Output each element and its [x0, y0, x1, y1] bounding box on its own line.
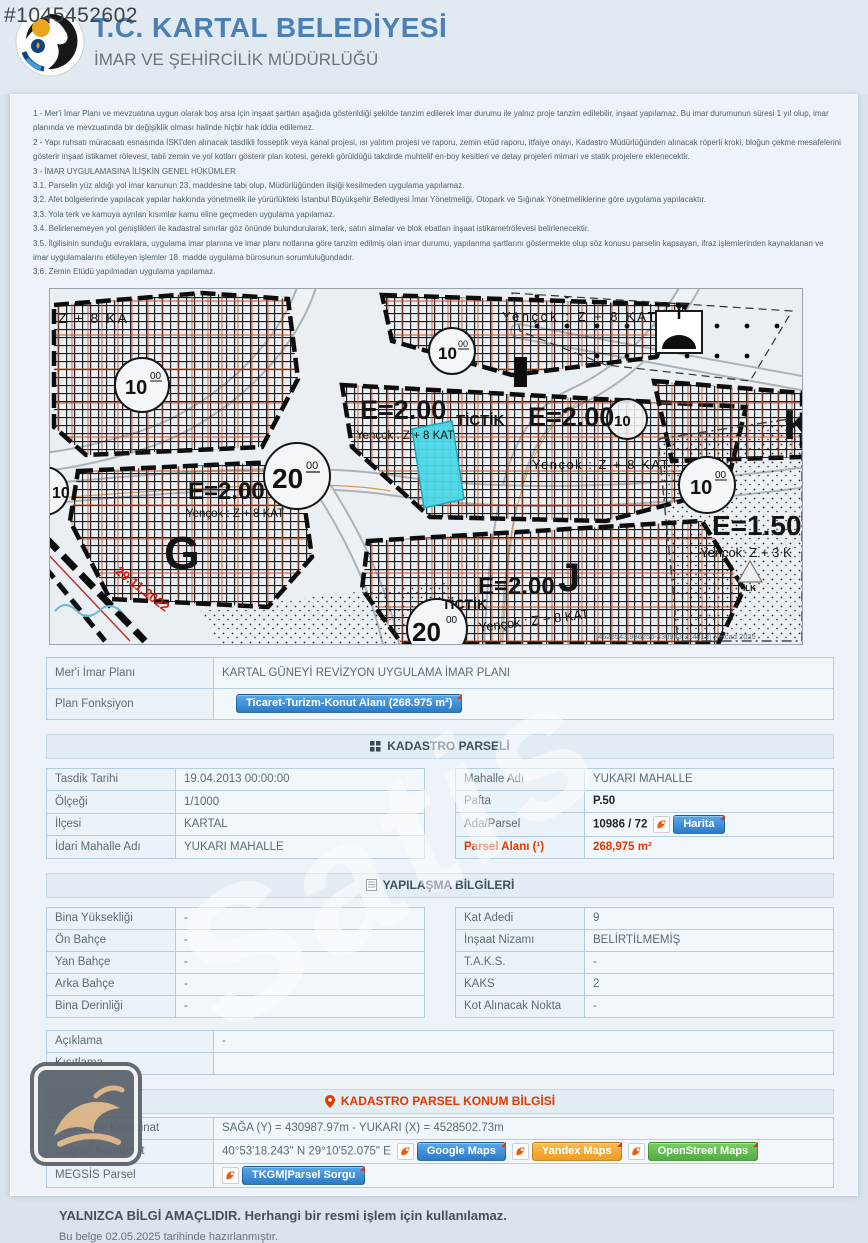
field-label: Mahalle Adı: [456, 768, 585, 790]
table-row: Parsel Alanı (¹)268,975 m²: [456, 836, 834, 858]
table-row: Kat Adedi9: [456, 907, 834, 929]
field-label: İlçesi: [47, 813, 176, 836]
table-row: Plan Fonksiyon Ticaret-Turizm-Konut Alan…: [47, 688, 834, 719]
table-row: Ön Bahçe-: [47, 929, 425, 951]
table-row: Kot Alınacak Nokta-: [456, 995, 834, 1017]
field-label: İdari Mahalle Adı: [47, 836, 176, 859]
google-maps-button[interactable]: Google Maps: [417, 1142, 506, 1161]
field-value: 9: [585, 907, 834, 929]
zone-label: E=2.00: [360, 395, 446, 425]
road-width-value: 20: [272, 463, 303, 494]
field-value: YUKARI MAHALLE: [585, 768, 834, 790]
field-value: -: [176, 929, 425, 951]
generated-date-text: Bu belge 02.05.2025 tarihinde hazırlanmı…: [59, 1231, 857, 1243]
zone-label: Yençok : Z + 8 KAT: [532, 457, 670, 472]
table-row: Coğrafi Koordinat 40°53'18.243" N 29°10'…: [47, 1139, 834, 1163]
field-label: KAKS: [456, 973, 585, 995]
field-value: -: [176, 995, 425, 1017]
field-value: 10986 / 72Harita: [585, 812, 834, 836]
tkgm-icon: [653, 816, 670, 833]
table-row: Yan Bahçe-: [47, 951, 425, 973]
table-row: Bina Yüksekliği-: [47, 907, 425, 929]
legal-line: 3.4. Belirlenemeyen yol genişlikleri ile…: [33, 222, 841, 236]
section-kadastro-parseli: KADASTRO PARSELİ: [46, 734, 834, 759]
legal-line: 3.1. Parselin yüz aldığı yol imar kanunu…: [33, 179, 841, 193]
table-row: Arka Bahçe-: [47, 973, 425, 995]
field-label: Ada/Parsel: [456, 812, 585, 836]
road-width-sup: 00: [150, 371, 162, 382]
table-row: Mahalle AdıYUKARI MAHALLE: [456, 768, 834, 790]
yapilasma-tables: Bina Yüksekliği- Ön Bahçe- Yan Bahçe- Ar…: [46, 907, 857, 1018]
field-value: KARTAL: [176, 813, 425, 836]
konum-table: Kartezyen Koordinat SAĞA (Y) = 430987.97…: [46, 1117, 834, 1188]
legal-notes: 1 - Mer'i İmar Planı ve mevzuatına uygun…: [33, 107, 841, 280]
tkgm-parsel-sorgu-button[interactable]: TKGM|Parsel Sorgu: [242, 1166, 365, 1185]
zone-label: Yençok : Z + 8 KAT: [186, 508, 284, 520]
table-row: Kartezyen Koordinat SAĞA (Y) = 430987.97…: [47, 1117, 834, 1139]
field-label: MEGSİS Parsel: [47, 1163, 214, 1187]
grid-icon: [370, 741, 381, 752]
zone-label: E=2.00: [528, 402, 614, 432]
zone-label: Yençok : Z + 8 KAT: [502, 309, 658, 324]
field-value: [214, 1052, 834, 1074]
yandex-maps-button[interactable]: Yandex Maps: [532, 1142, 622, 1161]
notes-table: Açıklama- Kısıtlama: [46, 1030, 834, 1075]
netcad-coordinates: [4528543.936256-430943.314813] Netcad 20…: [596, 632, 756, 641]
building-footprint: [514, 357, 527, 387]
school-label: İLK: [743, 584, 756, 593]
field-label: Bina Yüksekliği: [47, 907, 176, 929]
field-value: TKGM|Parsel Sorgu: [214, 1163, 834, 1187]
zone-label: E=2.00: [188, 478, 265, 505]
section-konum-bilgisi: KADASTRO PARSEL KONUM BİLGİSİ: [46, 1089, 834, 1114]
section-title: KADASTRO PARSEL KONUM BİLGİSİ: [341, 1094, 555, 1108]
road-width-sup: 00: [458, 339, 468, 349]
field-label: T.A.K.S.: [456, 951, 585, 973]
tkgm-icon: [512, 1143, 529, 1160]
kadastro-tables: Tasdik Tarihi19.04.2013 00:00:00 Ölçeği1…: [46, 768, 857, 859]
table-row: Mer'i İmar Planı KARTAL GÜNEYİ REVİZYON …: [47, 657, 834, 688]
page-title: T.C. KARTAL BELEDİYESİ: [92, 12, 447, 44]
field-value: 40°53'18.243" N 29°10'52.075" EGoogle Ma…: [214, 1139, 834, 1163]
table-row: Ölçeği1/1000: [47, 791, 425, 814]
road-width-value: 10: [690, 477, 712, 499]
road-width-value: 20: [412, 617, 441, 644]
field-value: -: [585, 995, 834, 1017]
legal-line: 1 - Mer'i İmar Planı ve mevzuatına uygun…: [33, 107, 841, 136]
kadastro-right-table: Mahalle AdıYUKARI MAHALLE PaftaP.50 Ada/…: [455, 768, 834, 859]
table-row: İlçesiKARTAL: [47, 813, 425, 836]
field-label: Bina Derinliği: [47, 995, 176, 1017]
field-value: -: [214, 1030, 834, 1052]
zone-label: E=1.50: [712, 510, 802, 541]
yapilasma-right-table: Kat Adedi9 İnşaat NizamıBELİRTİLMEMİŞ T.…: [455, 907, 834, 1018]
road-width-sup: 00: [446, 615, 458, 626]
table-row: İnşaat NizamıBELİRTİLMEMİŞ: [456, 929, 834, 951]
field-label: Tasdik Tarihi: [47, 768, 176, 791]
field-label: Ön Bahçe: [47, 929, 176, 951]
ada-parsel-value: 10986 / 72: [593, 818, 647, 830]
legal-line: 3.2. Afet bölgelerinde yapılacak yapılar…: [33, 193, 841, 207]
table-row: Bina Derinliği-: [47, 995, 425, 1017]
zone-letter: K: [784, 401, 802, 448]
field-value: 2: [585, 973, 834, 995]
field-value: -: [176, 973, 425, 995]
field-label: Kat Adedi: [456, 907, 585, 929]
road-width-value: 10: [614, 413, 631, 430]
zone-label: TİCTİK: [442, 596, 487, 612]
tkgm-icon: [628, 1143, 645, 1160]
table-row: Açıklama-: [47, 1030, 834, 1052]
road-width-value: 10: [52, 485, 70, 502]
field-label: Arka Bahçe: [47, 973, 176, 995]
field-label: Yan Bahçe: [47, 951, 176, 973]
field-label: Parsel Alanı (¹): [456, 836, 585, 858]
listing-id-watermark: #1045452602: [4, 4, 138, 28]
table-row: İdari Mahalle AdıYUKARI MAHALLE: [47, 836, 425, 859]
table-row: Kısıtlama: [47, 1052, 834, 1074]
section-title: KADASTRO PARSELİ: [387, 739, 509, 753]
tkgm-icon: [397, 1143, 414, 1160]
zone-label: Yençok: Z + 3 K: [700, 545, 792, 560]
zone-label: Z + 8 KA: [58, 310, 129, 326]
field-value: YUKARI MAHALLE: [176, 836, 425, 859]
zoning-map-frame: 10 00 10 00 10 20 00 10 00 20 00 10: [49, 288, 803, 645]
legal-line: 2 - Yapı ruhsatı müracaatı esnasında İSK…: [33, 136, 841, 165]
field-label: Mer'i İmar Planı: [47, 657, 214, 688]
disclaimer-text: YALNIZCA BİLGİ AMAÇLIDIR. Herhangi bir r…: [59, 1208, 857, 1223]
road-width-sup: 00: [715, 470, 727, 481]
yapilasma-left-table: Bina Yüksekliği- Ön Bahçe- Yan Bahçe- Ar…: [46, 907, 425, 1018]
openstreet-maps-button[interactable]: OpenStreet Maps: [648, 1142, 758, 1161]
field-value: KARTAL GÜNEYİ REVİZYON UYGULAMA İMAR PLA…: [214, 657, 834, 688]
field-value: P.50: [585, 790, 834, 812]
section-title: YAPILAŞMA BİLGİLERİ: [383, 878, 515, 892]
field-label: Kot Alınacak Nokta: [456, 995, 585, 1017]
table-row: PaftaP.50: [456, 790, 834, 812]
zone-label: E=2.00: [478, 573, 555, 600]
zone-letter: G: [164, 527, 200, 579]
field-value: 19.04.2013 00:00:00: [176, 768, 425, 791]
plan-function-button[interactable]: Ticaret-Turizm-Konut Alanı (268.975 m²): [236, 694, 462, 713]
field-label: Pafta: [456, 790, 585, 812]
kadastro-left-table: Tasdik Tarihi19.04.2013 00:00:00 Ölçeği1…: [46, 768, 425, 859]
table-row: T.A.K.S.-: [456, 951, 834, 973]
geo-coordinates-value: 40°53'18.243" N 29°10'52.075" E: [222, 1145, 391, 1157]
zone-letter: J: [558, 556, 580, 600]
field-value: -: [585, 951, 834, 973]
table-row: MEGSİS Parsel TKGM|Parsel Sorgu: [47, 1163, 834, 1187]
parcel-area-value: 268,975 m²: [585, 836, 834, 858]
section-yapilasma-bilgileri: YAPILAŞMA BİLGİLERİ: [46, 873, 834, 898]
tkgm-icon: [222, 1167, 239, 1184]
zone-label: Yençok : Z + 8 KAT: [356, 430, 454, 442]
table-row: Ada/Parsel 10986 / 72Harita: [456, 812, 834, 836]
field-value: -: [176, 951, 425, 973]
road-width-value: 10: [438, 344, 457, 363]
legal-line: 3.5. İlgilisinin sunduğu evraklara, uygu…: [33, 237, 841, 266]
road-width-value: 10: [125, 377, 147, 399]
field-label: Plan Fonksiyon: [47, 688, 214, 719]
listing-site-watermark-logo: [30, 1062, 142, 1166]
location-pin-icon: [325, 1095, 335, 1108]
document-icon: [366, 879, 377, 891]
zoning-map: 10 00 10 00 10 20 00 10 00 20 00 10: [50, 289, 802, 644]
field-label: İnşaat Nizamı: [456, 929, 585, 951]
field-value: BELİRTİLMEMİŞ: [585, 929, 834, 951]
field-value: -: [176, 907, 425, 929]
zone-label: TİCTİK: [456, 412, 504, 429]
field-label: Ölçeği: [47, 791, 176, 814]
legal-line: 3.3. Yola terk ve kamuya ayrılan kısımla…: [33, 208, 841, 222]
legal-line: 3 - İMAR UYGULAMASINA İLİŞKİN GENEL HÜKÜ…: [33, 165, 841, 179]
field-label: Açıklama: [47, 1030, 214, 1052]
harita-button[interactable]: Harita: [673, 815, 724, 834]
field-value: 1/1000: [176, 791, 425, 814]
plan-table: Mer'i İmar Planı KARTAL GÜNEYİ REVİZYON …: [46, 657, 834, 720]
road-width-sup: 00: [306, 460, 318, 472]
legal-line: 3.6. Zemin Etüdü yapılmadan uygulama yap…: [33, 265, 841, 279]
field-value: Ticaret-Turizm-Konut Alanı (268.975 m²): [214, 688, 834, 719]
document-panel: 1 - Mer'i İmar Planı ve mevzuatına uygun…: [10, 94, 858, 1196]
table-row: Tasdik Tarihi19.04.2013 00:00:00: [47, 768, 425, 791]
table-row: KAKS2: [456, 973, 834, 995]
page-subtitle: İMAR VE ŞEHİRCİLİK MÜDÜRLÜĞÜ: [94, 50, 378, 70]
field-value: SAĞA (Y) = 430987.97m - YUKARI (X) = 452…: [214, 1117, 834, 1139]
mosque-icon: [656, 305, 702, 353]
